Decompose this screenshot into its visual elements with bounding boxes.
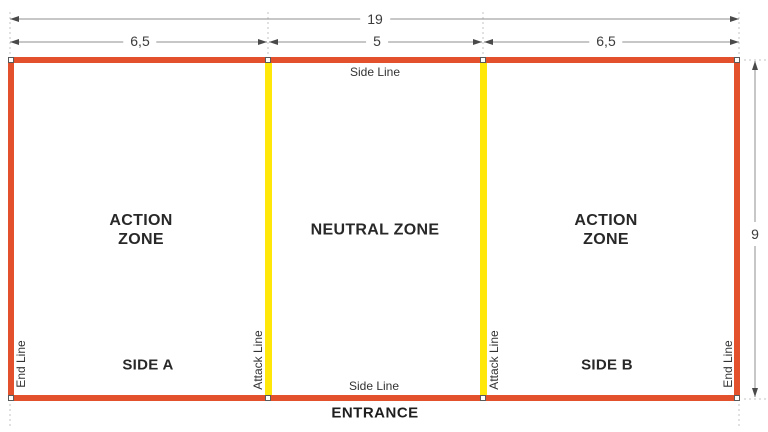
end-line-right-label: End Line — [721, 340, 735, 387]
attack-line-right-label: Attack Line — [487, 330, 501, 389]
corner-marker — [734, 57, 740, 63]
dimension-total-width: 19 — [360, 11, 390, 27]
action-zone-left-label: ACTION ZONE — [109, 211, 172, 249]
end-line-left-label: End Line — [14, 340, 28, 387]
action-zone-right-line1: ACTION — [574, 211, 637, 230]
side-b-label: SIDE B — [581, 357, 633, 374]
side-line-top-label: Side Line — [350, 65, 400, 79]
corner-marker — [480, 395, 486, 401]
action-zone-left-line2: ZONE — [109, 230, 172, 249]
court-diagram: 19 6,5 5 6,5 9 Side Line Side Line End L… — [0, 0, 768, 432]
corner-marker — [8, 395, 14, 401]
corner-marker — [480, 57, 486, 63]
action-zone-left-line1: ACTION — [109, 211, 172, 230]
corner-marker — [265, 57, 271, 63]
corner-marker — [8, 57, 14, 63]
dimension-court-height: 9 — [751, 222, 759, 246]
dimension-neutral-zone: 5 — [366, 33, 388, 49]
attack-line-left-marking — [265, 63, 272, 395]
action-zone-right-label: ACTION ZONE — [574, 211, 637, 249]
corner-marker — [734, 395, 740, 401]
corner-marker — [265, 395, 271, 401]
attack-line-left-label: Attack Line — [251, 330, 265, 389]
side-line-bottom-label: Side Line — [349, 379, 399, 393]
action-zone-right-line2: ZONE — [574, 230, 637, 249]
dimension-right-zone: 6,5 — [589, 33, 622, 49]
dimension-left-zone: 6,5 — [123, 33, 156, 49]
attack-line-right-marking — [480, 63, 487, 395]
side-a-label: SIDE A — [122, 357, 173, 374]
entrance-label: ENTRANCE — [331, 405, 418, 422]
neutral-zone-label: NEUTRAL ZONE — [311, 221, 440, 240]
